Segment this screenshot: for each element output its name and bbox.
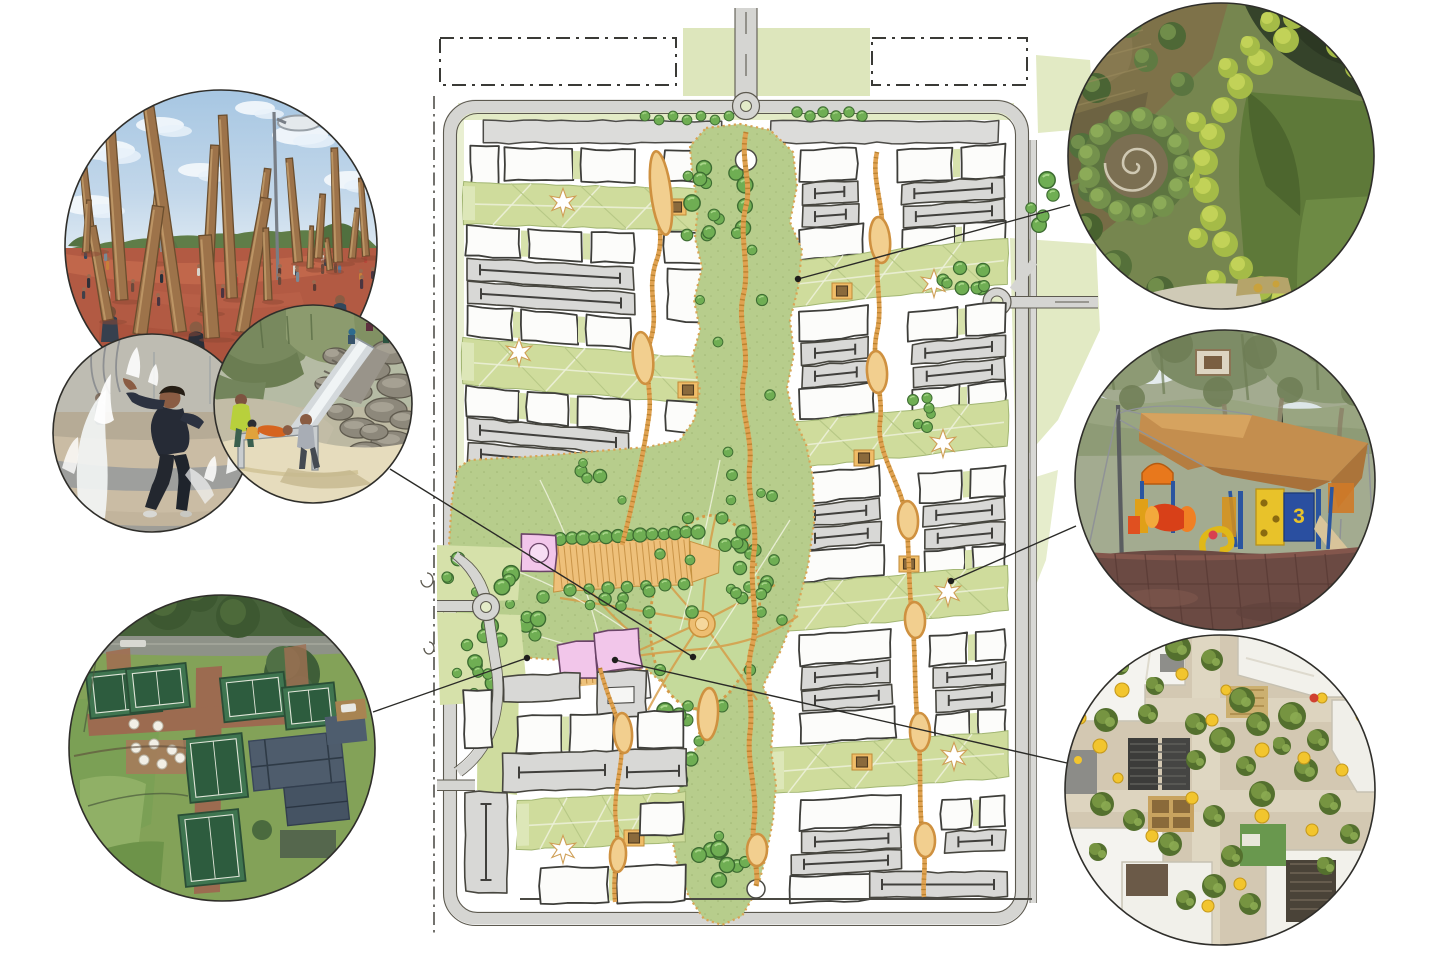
svg-text:3: 3	[1293, 505, 1305, 528]
